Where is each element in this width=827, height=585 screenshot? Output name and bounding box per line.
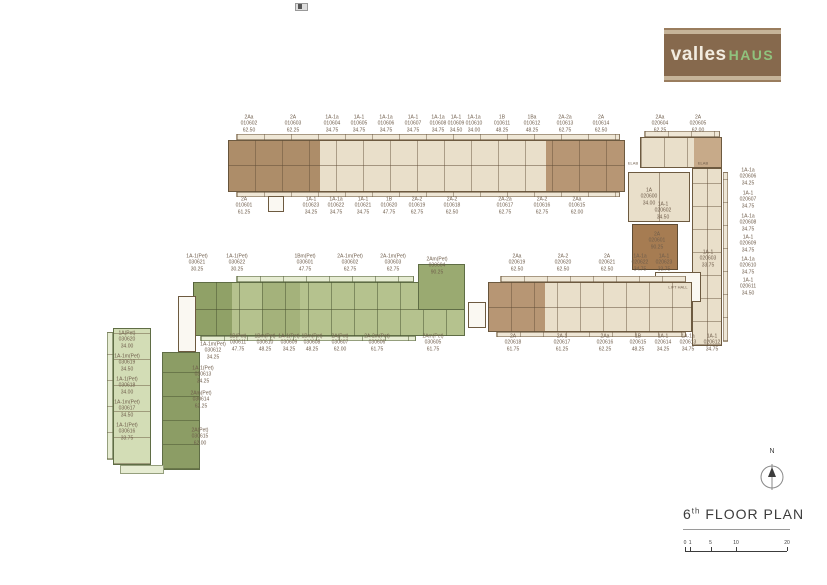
unit-label-020605: 2A02060562.00 bbox=[690, 115, 707, 134]
lift-hall-label: LIFT HALL bbox=[668, 285, 687, 290]
unit-label-030609: 1A-1(Pet)03060934.25 bbox=[278, 334, 299, 353]
unit-label-010611: 1B01061148.25 bbox=[494, 115, 510, 134]
unit-label-030619: 1A-1m(Pet)03061934.50 bbox=[114, 354, 140, 373]
scale-tick-10: 10 bbox=[733, 540, 739, 546]
unit-label-020610: 1A-1a02061034.75 bbox=[740, 257, 757, 276]
unit-label-020611: 1A-102061134.50 bbox=[740, 278, 756, 297]
walkway-box-east bbox=[468, 302, 486, 328]
unit-label-030607: 2A(Pet)03060762.00 bbox=[332, 334, 349, 353]
compass-icon bbox=[754, 455, 790, 495]
unit-label-030606: 2A-2m(Pet)03060661.75 bbox=[364, 334, 390, 353]
unit-label-020615: 1B02061548.25 bbox=[630, 334, 647, 353]
unit-label-020602: 1A-102060234.50 bbox=[655, 202, 672, 221]
north-label: N bbox=[752, 448, 792, 455]
unit-label-010613: 2A-2a01061362.75 bbox=[557, 115, 574, 134]
unit-label-020601: 2A02060190.25 bbox=[649, 232, 666, 251]
unit-label-030604: 2Am(Pet)03060490.25 bbox=[426, 257, 447, 276]
unit-label-030616: 1A-1(Pet)03061633.75 bbox=[116, 423, 137, 442]
unit-label-030608: 1Bm(Pet)03060848.25 bbox=[301, 334, 322, 353]
building1-unit-grid bbox=[228, 140, 625, 192]
scale-tick-0: 0 bbox=[684, 540, 687, 546]
unit-label-020617: 2A-102061761.25 bbox=[554, 334, 571, 353]
logo-text-valles: valles bbox=[671, 44, 727, 66]
floor-ordinal: th bbox=[692, 506, 701, 515]
scale-tick-20: 20 bbox=[784, 540, 790, 546]
unit-label-030602: 2A-1m(Pet)03060262.75 bbox=[337, 254, 363, 273]
unit-label-030611: 1B(Pet)03061147.75 bbox=[230, 334, 247, 353]
unit-label-030601: 1Bm(Pet)03060147.75 bbox=[294, 254, 315, 273]
unit-label-010622: 1A-1a01062234.75 bbox=[328, 197, 345, 216]
scale-line bbox=[685, 551, 787, 552]
unit-label-030614: 2Am(Pet)03061462.25 bbox=[190, 391, 211, 410]
unit-label-030613: 1A-1(Pet)03061334.25 bbox=[192, 366, 213, 385]
building2-balcony-strip-right bbox=[723, 172, 728, 342]
scale-tick-5: 5 bbox=[709, 540, 712, 546]
unit-label-010609: 1A-101060934.50 bbox=[448, 115, 465, 134]
unit-label-020614: 1A-102061434.25 bbox=[655, 334, 672, 353]
unit-label-030615: 2A(Pet)03061562.00 bbox=[192, 428, 209, 447]
unit-label-030612: 1A-1m(Pet)03061234.25 bbox=[200, 342, 226, 361]
unit-label-010602: 2Aa01060262.50 bbox=[241, 115, 258, 134]
unit-label-010601: 2A01060161.25 bbox=[236, 197, 253, 216]
unit-label-030603: 2A-1m(Pet)03060362.75 bbox=[380, 254, 406, 273]
unit-label-020604: 2Aa02060462.25 bbox=[652, 115, 669, 134]
unit-label-010623: 1A-101062334.25 bbox=[303, 197, 320, 216]
unit-label-010618: 2A-201061862.50 bbox=[444, 197, 461, 216]
unit-label-010603: 2A01060362.25 bbox=[285, 115, 302, 134]
floor-number: 6 bbox=[683, 506, 692, 522]
unit-label-010615: 2Aa01061562.00 bbox=[569, 197, 586, 216]
valleshaus-logo: valles HAUS bbox=[664, 30, 781, 80]
unit-label-010610: 1A-1a01061034.00 bbox=[466, 115, 483, 134]
unit-label-030610: 1Bm(Pet)03061048.25 bbox=[254, 334, 275, 353]
unit-label-030618: 1A-1(Pet)03061834.00 bbox=[116, 377, 137, 396]
building2-middle-corridor-line bbox=[488, 307, 692, 308]
unit-label-010616: 2A-201061662.75 bbox=[534, 197, 551, 216]
north-compass: N bbox=[752, 448, 792, 498]
unit-label-010605: 1A-101060534.75 bbox=[351, 115, 368, 134]
elab-label-1: ELAB bbox=[628, 161, 638, 166]
floor-plan-page: valles HAUS bbox=[0, 0, 827, 585]
floor-label: FLOOR PLAN bbox=[705, 506, 804, 522]
unit-label-010617: 2A-2a01061762.75 bbox=[497, 197, 514, 216]
building3-connector bbox=[178, 296, 196, 352]
title-divider bbox=[683, 529, 790, 530]
unit-label-010619: 2A-201061962.75 bbox=[409, 197, 426, 216]
unit-label-010614: 2A01061462.50 bbox=[593, 115, 610, 134]
unit-label-020609: 1A-102060934.75 bbox=[740, 235, 757, 254]
unit-label-020619: 2Aa02061962.50 bbox=[509, 254, 526, 273]
unit-label-020606: 1A-1a02060634.25 bbox=[740, 168, 757, 187]
unit-label-010620: 1B01062047.75 bbox=[381, 197, 398, 216]
floor-plan-title: 6th FLOOR PLAN bbox=[683, 506, 804, 522]
unit-label-020623: 1A-102062333.75 bbox=[656, 254, 673, 273]
unit-label-010606: 1A-1a01060634.75 bbox=[378, 115, 395, 134]
unit-label-020621: 2A02062162.50 bbox=[599, 254, 616, 273]
scale-bar: 0151020 bbox=[685, 540, 789, 554]
unit-label-010612: 1Ba01061248.25 bbox=[524, 115, 541, 134]
unit-label-030620: 1A(Pet)03062034.00 bbox=[119, 331, 136, 350]
unit-label-010608: 1A-1a01060834.75 bbox=[430, 115, 447, 134]
unit-label-030621: 1A-1(Pet)03062130.25 bbox=[186, 254, 207, 273]
unit-label-030605: 2Am(Pet)03060561.75 bbox=[422, 334, 443, 353]
unit-label-010604: 1A-1a01060434.75 bbox=[324, 115, 341, 134]
unit-label-020616: 2Aa02061662.25 bbox=[597, 334, 614, 353]
unit-label-010621: 1A-101062134.75 bbox=[355, 197, 372, 216]
logo-text-haus: HAUS bbox=[729, 47, 775, 63]
building1-corridor-line bbox=[228, 165, 625, 166]
unit-label-010607: 1A-101060734.75 bbox=[405, 115, 422, 134]
building1-balcony-strip-bottom bbox=[236, 192, 620, 197]
elab-label-2: ELAB bbox=[698, 161, 708, 166]
unit-label-020603: 1A-102060333.75 bbox=[700, 250, 717, 269]
building3-left-wing-end bbox=[120, 465, 164, 474]
unit-label-020607: 1A-102060734.75 bbox=[740, 191, 757, 210]
unit-label-020612: 1A-102061234.75 bbox=[704, 334, 721, 353]
roof-detail-mark bbox=[298, 4, 302, 9]
unit-label-030622: 1A-1(Pet)03062230.25 bbox=[226, 254, 247, 273]
unit-label-020620: 2A-202062062.50 bbox=[555, 254, 572, 273]
unit-label-020622: 1A-1a02062234.75 bbox=[632, 254, 649, 273]
scale-tick-1: 1 bbox=[689, 540, 692, 546]
unit-label-020613: 1A-1a02061334.75 bbox=[680, 334, 697, 353]
building1-stair-box bbox=[268, 196, 284, 212]
unit-label-020608: 1A-1a02060834.75 bbox=[740, 214, 757, 233]
unit-label-020618: 2A02061861.75 bbox=[505, 334, 522, 353]
unit-label-030617: 1A-1m(Pet)03061734.50 bbox=[114, 400, 140, 419]
